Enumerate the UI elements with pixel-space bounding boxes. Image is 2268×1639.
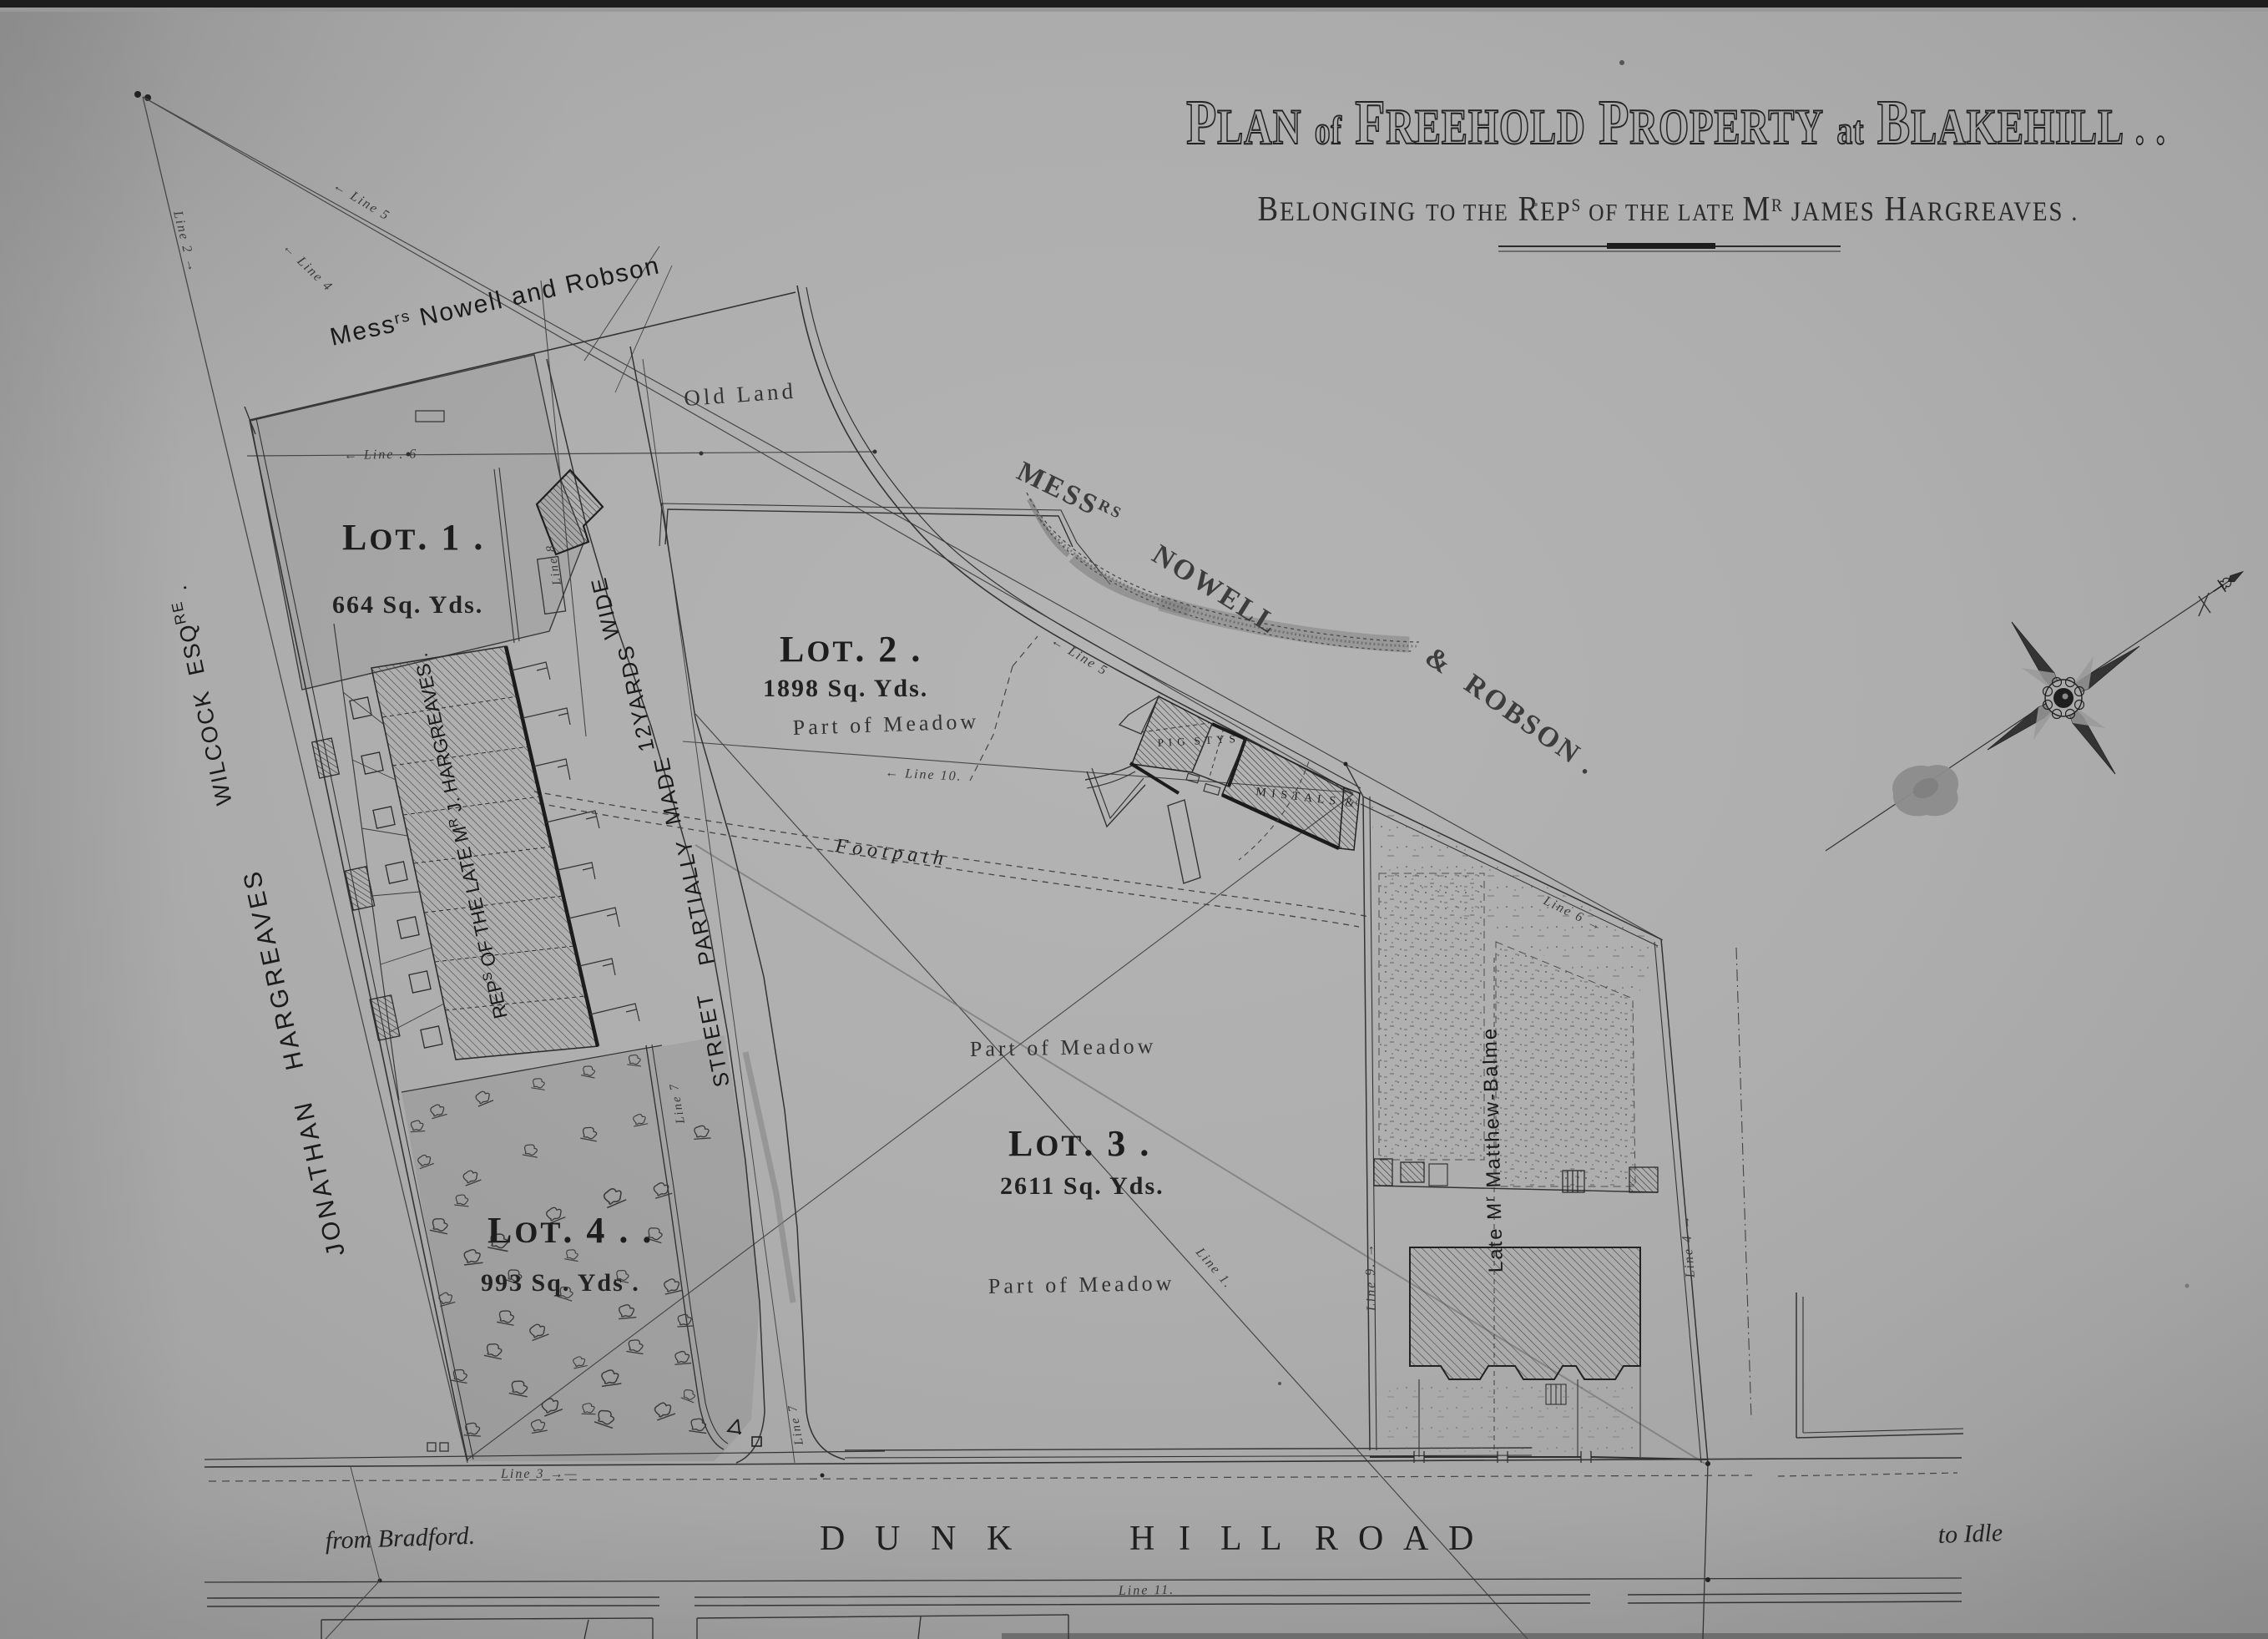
- svg-text:2611 Sq. Yds.: 2611 Sq. Yds.: [1000, 1172, 1164, 1200]
- svg-text:LOT. 4 . .: LOT. 4 . .: [487, 1210, 654, 1251]
- svg-text:Line 9. →: Line 9. →: [1362, 1242, 1379, 1312]
- svg-text:Part of Meadow: Part of Meadow: [988, 1271, 1175, 1298]
- svg-text:993 Sq. Yds .: 993 Sq. Yds .: [481, 1269, 640, 1297]
- svg-text:Line 3 →—: Line 3 →—: [500, 1467, 578, 1481]
- svg-text:← Line . 6: ← Line . 6: [344, 447, 418, 463]
- svg-text:1898 Sq. Yds.: 1898 Sq. Yds.: [763, 675, 928, 702]
- svg-text:from Bradford.: from Bradford.: [325, 1522, 476, 1555]
- svg-text:Part of Meadow: Part of Meadow: [970, 1034, 1157, 1061]
- svg-text:Line 11.: Line 11.: [1118, 1583, 1175, 1598]
- svg-text:LOT. 2 .: LOT. 2 .: [780, 629, 922, 670]
- svg-text:LOT. 3 .: LOT. 3 .: [1008, 1123, 1151, 1164]
- svg-text:to Idle: to Idle: [1937, 1519, 2003, 1549]
- svg-text:664 Sq. Yds.: 664 Sq. Yds.: [332, 591, 483, 619]
- svg-text:LOT. 1 .: LOT. 1 .: [342, 517, 485, 558]
